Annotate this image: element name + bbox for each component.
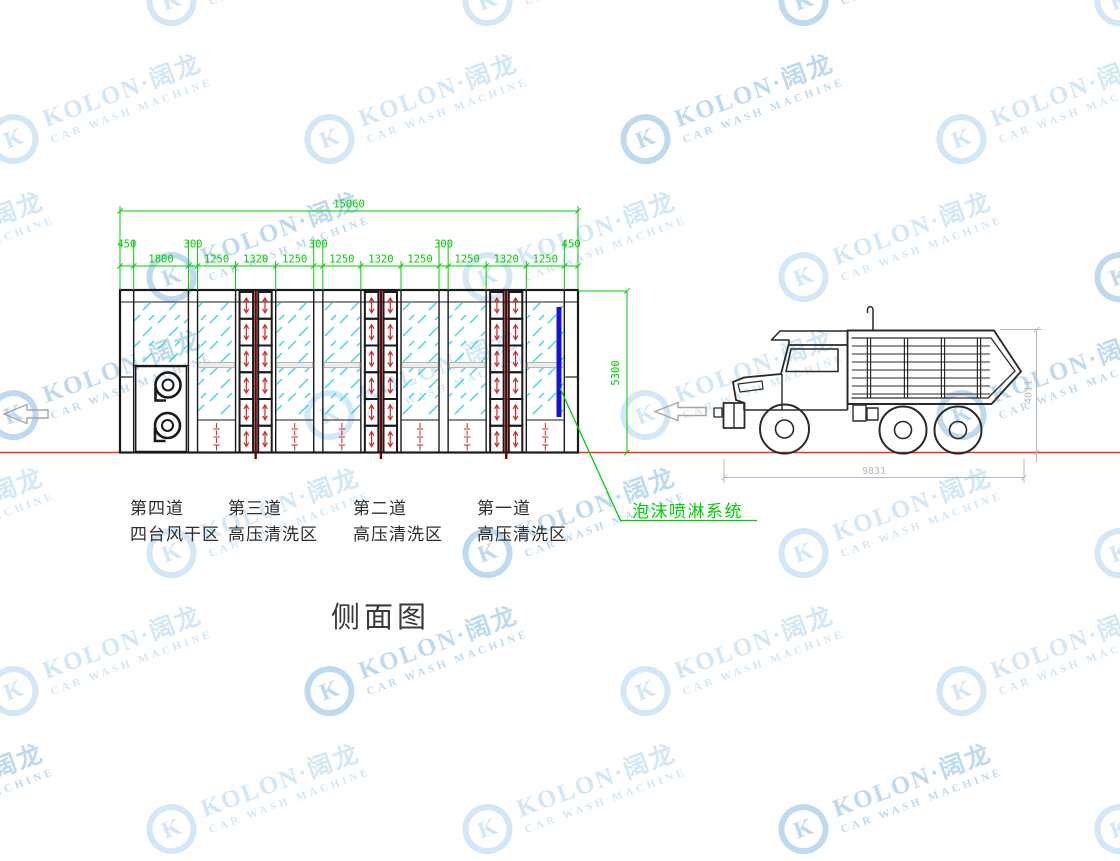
svg-text:1320: 1320 bbox=[368, 254, 393, 266]
svg-text:1250: 1250 bbox=[455, 254, 480, 266]
svg-text:1800: 1800 bbox=[148, 254, 173, 266]
svg-text:450: 450 bbox=[562, 239, 581, 251]
svg-text:1250: 1250 bbox=[282, 254, 307, 266]
svg-text:300: 300 bbox=[184, 239, 203, 251]
svg-text:1250: 1250 bbox=[533, 254, 558, 266]
cad-drawing-page: { "title": { "text": "侧面图" }, "watermark… bbox=[0, 0, 1120, 792]
svg-text:1250: 1250 bbox=[204, 254, 229, 266]
svg-text:9831: 9831 bbox=[862, 466, 886, 477]
kolon-logo-icon: K bbox=[771, 797, 835, 861]
kolon-logo-icon: K bbox=[139, 797, 203, 861]
svg-text:450: 450 bbox=[117, 239, 136, 251]
svg-text:300: 300 bbox=[434, 239, 453, 251]
side-view-drawing: 1506045018003001250132012503001250132012… bbox=[0, 0, 1120, 792]
foam-callout-leader bbox=[560, 388, 757, 521]
foam-spray-bar bbox=[557, 307, 562, 417]
svg-text:1250: 1250 bbox=[407, 254, 432, 266]
wash-tunnel-structure bbox=[120, 290, 578, 459]
kolon-logo-icon: K bbox=[1087, 797, 1120, 861]
svg-text:1320: 1320 bbox=[494, 254, 519, 266]
svg-text:4011: 4011 bbox=[1024, 380, 1035, 404]
truck-drawing bbox=[714, 307, 1021, 454]
svg-text:1250: 1250 bbox=[329, 254, 354, 266]
svg-text:1320: 1320 bbox=[243, 254, 268, 266]
svg-text:5300: 5300 bbox=[610, 360, 622, 385]
kolon-logo-icon: K bbox=[455, 797, 519, 861]
svg-text:300: 300 bbox=[309, 239, 328, 251]
svg-text:15060: 15060 bbox=[333, 199, 365, 211]
